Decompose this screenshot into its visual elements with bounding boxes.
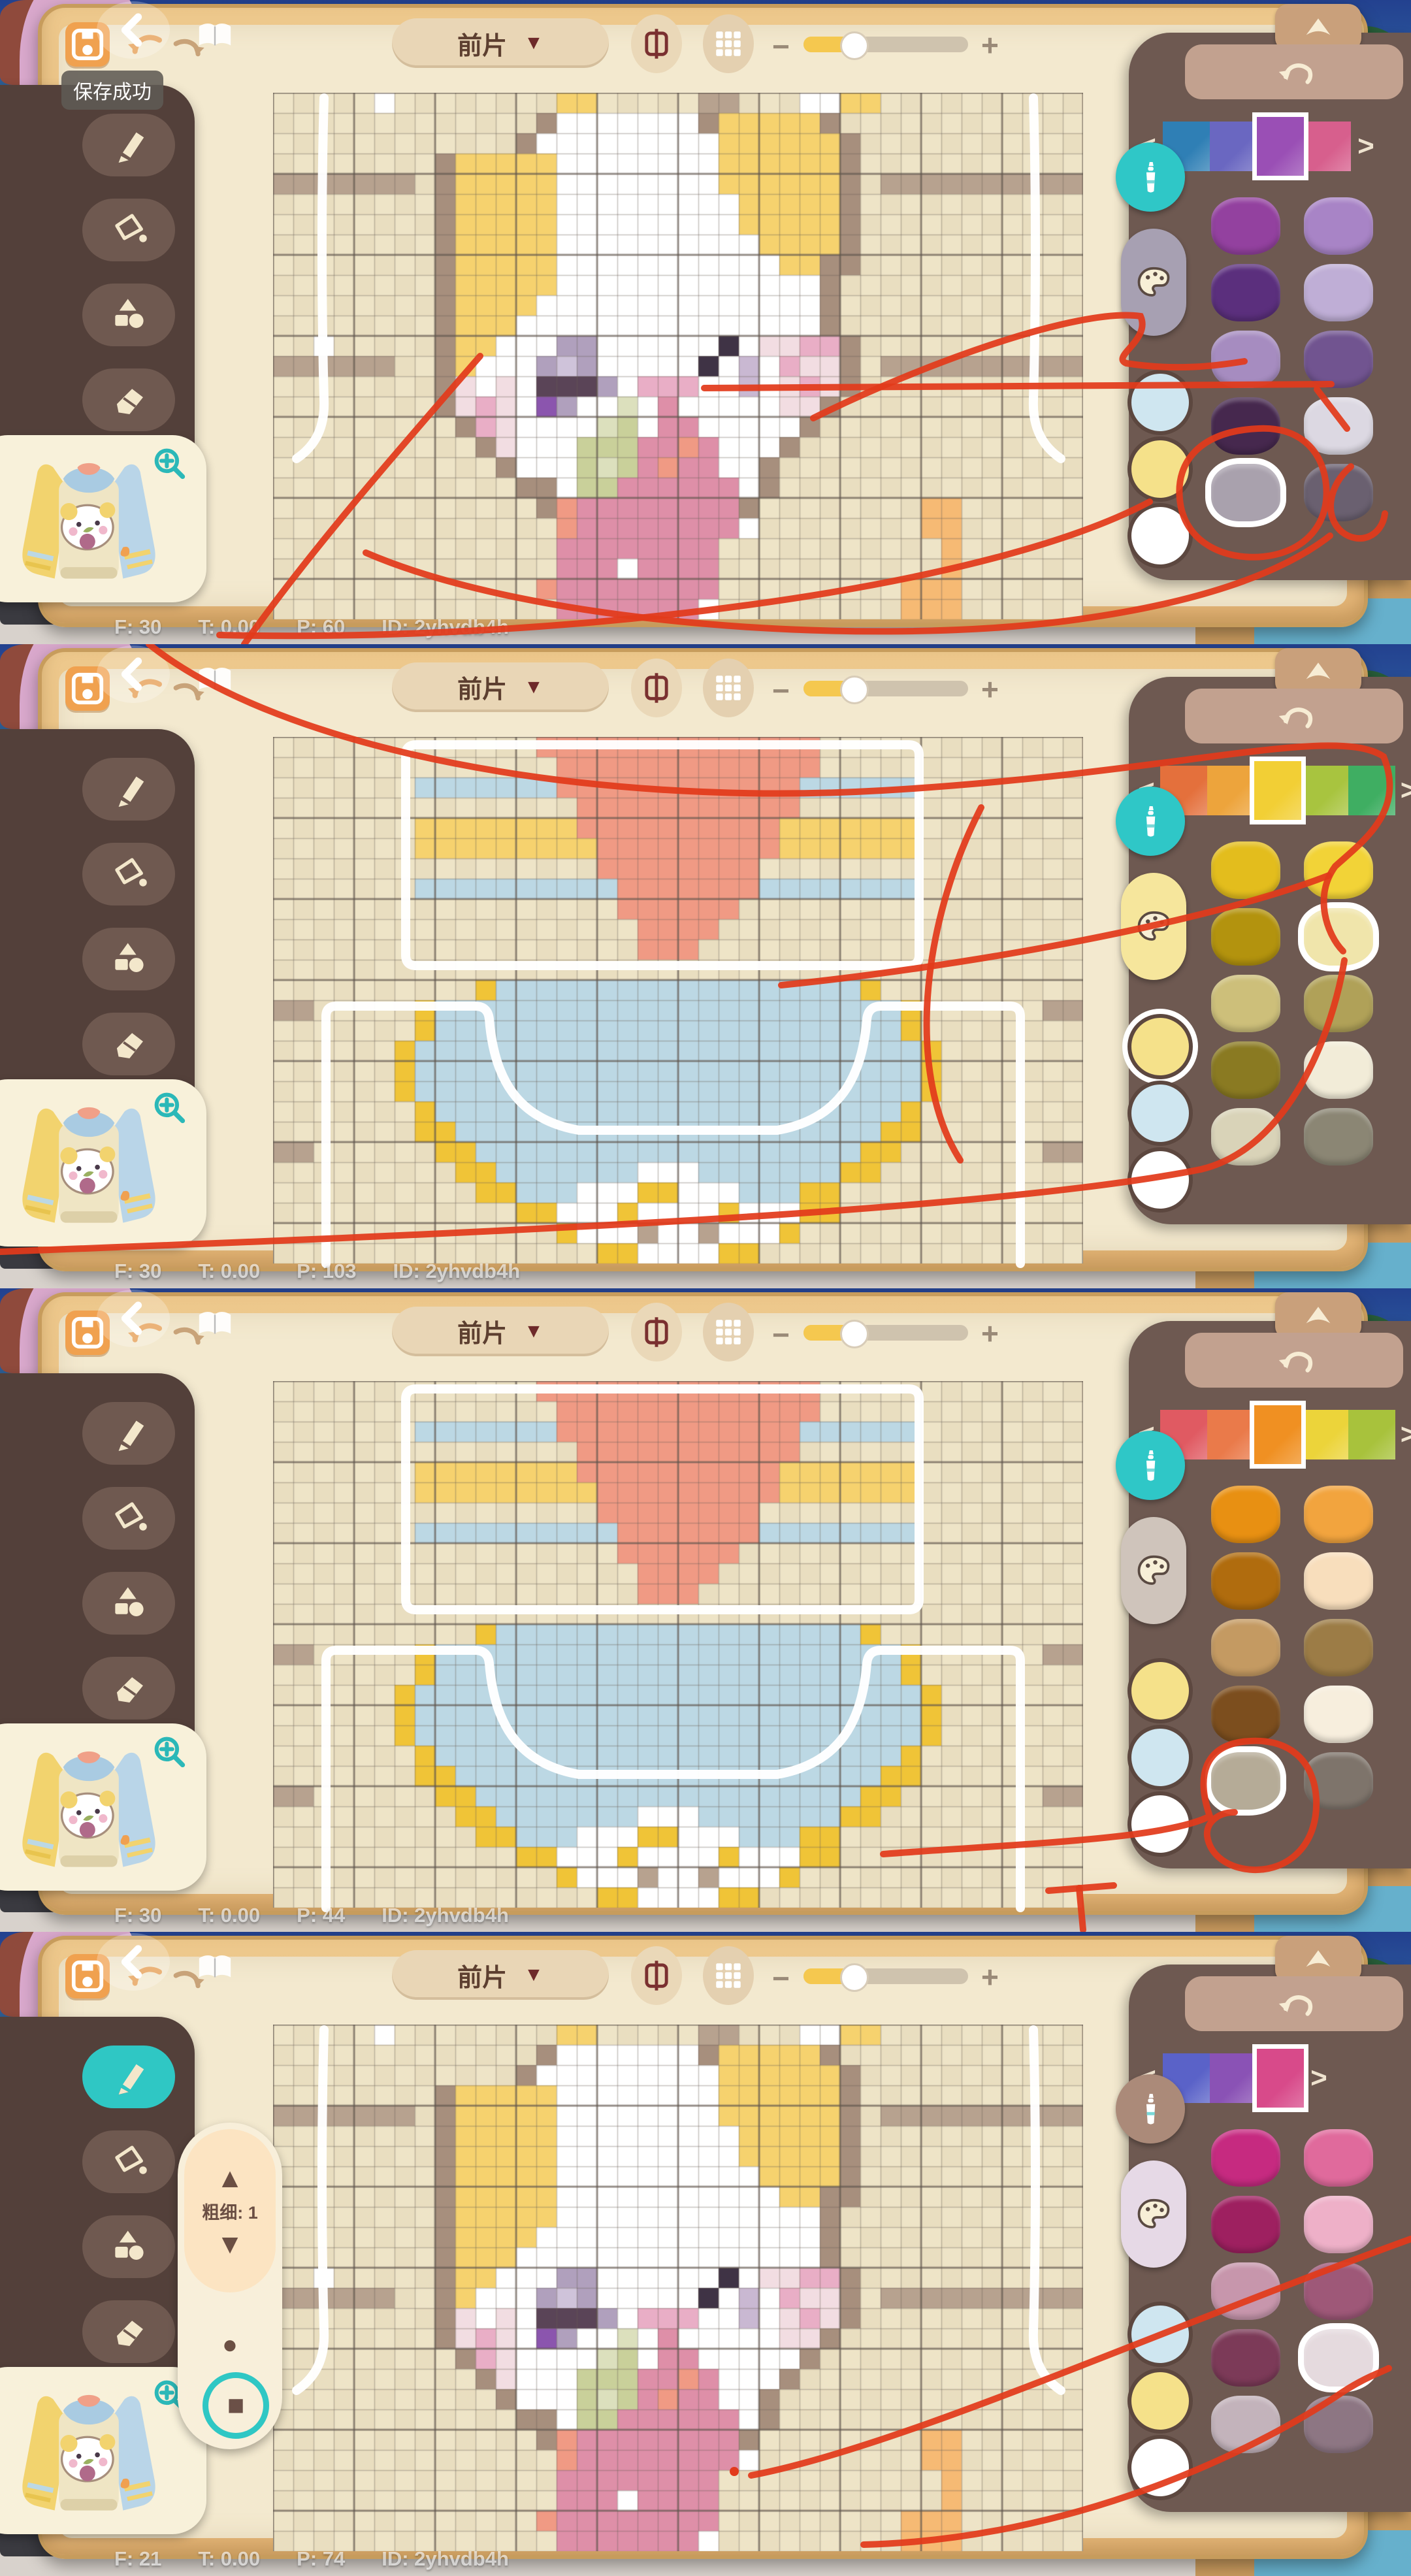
color-swatch[interactable] [1304,331,1373,388]
editor-panel: 前片 ▼ − + [0,644,1411,1288]
zoom-in-button[interactable]: + [981,1959,999,1995]
pencil-icon [108,1413,149,1454]
piece-dropdown[interactable]: 前片 ▼ [392,1950,609,2000]
tool-fill-bucket-button[interactable] [82,843,175,905]
swatch-grid [1211,1486,1373,1810]
manual-book-button[interactable] [196,1951,234,1984]
piece-dropdown[interactable]: 前片 ▼ [392,662,609,712]
size-down-button[interactable]: ▼ [216,2230,244,2258]
tool-eraser-button[interactable] [82,1657,175,1720]
color-swatch[interactable] [1304,197,1373,255]
milk-bottle-icon [1131,802,1169,840]
palette-icon [1134,907,1173,946]
grid-toggle-button[interactable] [703,1946,754,2005]
piece-dropdown-label: 前片 [457,1957,507,1993]
palette-icon [1134,2194,1173,2234]
palette-icon [1134,263,1173,302]
tool-pencil-button[interactable] [82,2046,175,2108]
status-points: P: 74 [297,2547,345,2571]
pencil-icon [108,769,149,809]
gradient-strip-segment[interactable] [1207,766,1254,815]
garment-preview-card [0,435,206,602]
tool-pencil-button[interactable] [82,114,175,176]
status-bar: F: 30 T: 0.00 P: 44 ID: 2yhvdb4h [114,1904,509,1927]
pixel-editor-area [273,1381,1083,1908]
back-button[interactable] [97,1933,170,1991]
seam-guide-overlay [273,2025,1083,2551]
grid-icon [712,672,745,704]
zoom-out-button[interactable]: − [772,29,790,64]
color-swatch[interactable] [1304,1686,1373,1743]
pixel-editor-area [273,2025,1083,2551]
manual-book-button[interactable] [196,664,234,696]
editor-panel: 保存成功 前片 ▼ − + [0,0,1411,644]
palette-undo-button[interactable] [1185,1333,1403,1388]
grid-toggle-button[interactable] [703,1303,754,1361]
color-swatch[interactable] [1211,197,1280,255]
collapse-panel-button[interactable] [1275,1292,1361,1339]
milk-bottle-icon [1131,158,1169,196]
color-swatch[interactable] [1211,2129,1280,2187]
palette-next-button[interactable]: > [1356,130,1376,163]
magnifier-plus-icon [150,1733,188,1770]
color-swatch[interactable] [1211,264,1280,321]
color-swatch[interactable] [1304,2262,1373,2320]
eraser-icon [108,1024,149,1064]
brush-shape-circle-button[interactable]: ● [178,2330,282,2360]
tool-shapes-button[interactable] [82,2215,175,2278]
eraser-icon [108,1668,149,1708]
palette-tool-button[interactable] [1121,2160,1186,2268]
color-swatch[interactable] [1304,1486,1373,1543]
chevron-down-icon: ▼ [524,32,543,54]
gradient-strip-segment[interactable] [1254,761,1301,820]
color-swatch[interactable] [1211,464,1280,521]
color-swatch[interactable] [1211,1686,1280,1743]
shapes-icon [108,295,149,335]
design-editor-app: 保存成功 前片 ▼ − + [0,0,1411,2576]
dye-bottle-tool-button[interactable] [1116,787,1185,856]
zoom-preview-button[interactable] [150,444,188,482]
palette-tool-button[interactable] [1121,229,1186,336]
piece-dropdown-label: 前片 [457,669,507,705]
size-up-button[interactable]: ▲ [216,2164,244,2192]
color-swatch[interactable] [1211,1552,1280,1610]
fill-bucket-icon [108,854,149,894]
gradient-strip-segment[interactable] [1207,1410,1254,1459]
chevron-down-icon: ▼ [524,676,543,698]
piece-dropdown-label: 前片 [457,1313,507,1349]
status-id: ID: 2yhvdb4h [393,1260,520,1283]
chevron-left-icon [114,655,153,694]
tool-eraser-button[interactable] [82,2300,175,2363]
color-swatch[interactable] [1211,1752,1280,1810]
color-swatch[interactable] [1211,2329,1280,2387]
palette-undo-button[interactable] [1185,689,1403,743]
swatch-grid [1211,197,1373,521]
editor-panel: 前片 ▼ − + [0,1932,1411,2576]
tool-fill-bucket-button[interactable] [82,199,175,261]
zoom-slider-knob[interactable] [840,31,869,60]
collapse-panel-button[interactable] [1275,648,1361,695]
book-icon [196,664,234,696]
zoom-in-button[interactable]: + [981,1316,999,1351]
zoom-in-button[interactable]: + [981,672,999,707]
gradient-strip [1160,1410,1395,1459]
chevron-left-icon [114,1942,153,1981]
dye-bottle-tool-button[interactable] [1116,2074,1185,2144]
color-swatch[interactable] [1304,1041,1373,1099]
zoom-slider[interactable] [803,681,968,696]
status-bar: F: 21 T: 0.00 P: 74 ID: 2yhvdb4h [114,2547,509,2571]
undo-arrow-icon [1274,1343,1314,1377]
magnifier-plus-icon [150,1088,188,1126]
back-button[interactable] [97,645,170,703]
magnifier-plus-icon [150,444,188,482]
pencil-icon [108,125,149,165]
chevron-up-icon [1300,12,1337,42]
fill-bucket-icon [108,2142,149,2182]
chevron-up-icon [1300,1301,1337,1331]
garment-preview-card [0,1723,206,1891]
status-frames: F: 21 [114,2547,161,2571]
gradient-strip [1160,766,1395,815]
color-palette-panel: < > [1129,1321,1411,1868]
status-bar: F: 30 T: 0.00 P: 103 ID: 2yhvdb4h [114,1260,520,1283]
status-time: T: 0.00 [198,1260,260,1283]
square-brush-icon: ■ [227,2391,245,2420]
gradient-strip-segment[interactable] [1348,1410,1395,1459]
zoom-out-button[interactable]: − [772,673,790,708]
color-swatch[interactable] [1304,464,1373,521]
status-id: ID: 2yhvdb4h [381,1904,509,1927]
zoom-slider[interactable] [803,37,968,52]
undo-arrow-icon [1274,699,1314,733]
fill-bucket-icon [108,1498,149,1539]
color-palette-panel: < > [1129,1965,1411,2512]
status-frames: F: 30 [114,1904,161,1927]
status-time: T: 0.00 [198,1904,260,1927]
pen-size-popout: ▲ 粗细: 1 ▼ ● ■ [178,2123,282,2449]
gradient-strip-segment[interactable] [1254,1405,1301,1464]
base-color-circle-2[interactable] [1127,1081,1193,1146]
gradient-strip-segment[interactable] [1348,766,1395,815]
piece-dropdown[interactable]: 前片 ▼ [392,18,609,68]
gradient-strip-segment[interactable] [1257,2049,1304,2108]
palette-next-button[interactable]: > [1401,1418,1411,1451]
mirror-icon [640,1315,673,1349]
status-id: ID: 2yhvdb4h [381,615,509,639]
mirror-button[interactable] [631,1303,682,1361]
color-swatch[interactable] [1211,975,1280,1032]
color-swatch[interactable] [1304,2329,1373,2387]
undo-arrow-icon [1274,1987,1314,2021]
book-icon [196,20,234,52]
status-points: P: 60 [297,615,345,639]
zoom-slider[interactable] [803,1325,968,1341]
status-points: P: 103 [297,1260,356,1283]
zoom-slider-knob[interactable] [840,676,869,704]
dye-bottle-tool-button[interactable] [1116,1431,1185,1500]
status-id: ID: 2yhvdb4h [381,2547,509,2571]
grid-icon [712,27,745,60]
tool-eraser-button[interactable] [82,1013,175,1075]
color-swatch[interactable] [1211,397,1280,455]
pencil-icon [108,2057,149,2097]
back-button[interactable] [97,1290,170,1347]
gradient-strip-segment[interactable] [1301,1410,1348,1459]
base-color-circle-3[interactable] [1127,503,1193,568]
grid-icon [712,1959,745,1992]
save-success-tooltip: 保存成功 [61,71,163,110]
chevron-left-icon [114,10,153,50]
status-bar: F: 30 T: 0.00 P: 60 ID: 2yhvdb4h [114,615,509,639]
color-swatch[interactable] [1304,908,1373,966]
palette-next-button[interactable]: > [1309,2062,1329,2095]
base-color-circle-1[interactable] [1127,2302,1193,2367]
zoom-slider[interactable] [803,1968,968,1984]
mirror-button[interactable] [631,659,682,717]
undo-arrow-icon [1274,55,1314,89]
palette-icon [1134,1551,1173,1590]
color-swatch[interactable] [1304,1619,1373,1676]
gradient-strip-segment[interactable] [1210,2053,1257,2103]
brush-shape-square-button[interactable]: ■ [203,2372,269,2439]
shapes-icon [108,939,149,979]
base-color-circle-3[interactable] [1127,1791,1193,1857]
mirror-icon [640,1959,673,1993]
zoom-slider-knob[interactable] [840,1963,869,1992]
chevron-up-icon [1300,657,1337,687]
eraser-icon [108,2311,149,2352]
milk-bottle-icon [1131,1446,1169,1484]
tool-pencil-button[interactable] [82,1402,175,1465]
color-swatch[interactable] [1211,1108,1280,1166]
back-button[interactable] [97,1,170,59]
gradient-strip-segment[interactable] [1210,122,1257,171]
fill-bucket-icon [108,210,149,250]
color-swatch[interactable] [1211,2396,1280,2453]
color-swatch[interactable] [1211,2196,1280,2253]
tool-pencil-button[interactable] [82,758,175,821]
tool-fill-bucket-button[interactable] [82,1487,175,1550]
color-swatch[interactable] [1211,1486,1280,1543]
garment-preview-card [0,2367,206,2534]
grid-icon [712,1316,745,1348]
gradient-strip [1163,2053,1304,2103]
chevron-down-icon: ▼ [524,1964,543,1986]
color-swatch[interactable] [1304,975,1373,1032]
editor-panel: 前片 ▼ − + [0,1288,1411,1932]
gradient-strip-segment[interactable] [1301,766,1348,815]
color-swatch[interactable] [1211,1041,1280,1099]
garment-preview-card [0,1079,206,1247]
tool-shapes-button[interactable] [82,928,175,990]
swatch-grid [1211,2129,1373,2453]
shapes-icon [108,2226,149,2267]
pen-size-label: 粗细: 1 [202,2198,258,2224]
seam-guide-overlay [273,1381,1083,1908]
status-time: T: 0.00 [198,615,260,639]
tool-shapes-button[interactable] [82,1572,175,1635]
book-icon [196,1951,234,1984]
chevron-down-icon: ▼ [524,1320,543,1343]
color-palette-panel: < > [1129,677,1411,1224]
color-swatch[interactable] [1304,2196,1373,2253]
color-swatch[interactable] [1211,908,1280,966]
mirror-button[interactable] [631,1946,682,2005]
palette-tool-button[interactable] [1121,1517,1186,1624]
zoom-out-button[interactable]: − [772,1961,790,1996]
seam-guide-overlay [273,93,1083,619]
book-icon [196,1308,234,1341]
status-time: T: 0.00 [198,2547,260,2571]
color-swatch[interactable] [1304,264,1373,321]
swatch-grid [1211,841,1373,1166]
palette-tool-button[interactable] [1121,873,1186,980]
tool-shapes-button[interactable] [82,284,175,346]
seam-guide-overlay [273,737,1083,1264]
base-color-circle-3[interactable] [1127,1147,1193,1213]
shapes-icon [108,1583,149,1623]
status-frames: F: 30 [114,1260,161,1283]
color-swatch[interactable] [1304,841,1373,899]
eraser-icon [108,380,149,420]
grid-toggle-button[interactable] [703,659,754,717]
piece-dropdown-label: 前片 [457,25,507,61]
base-color-circle-2[interactable] [1127,1725,1193,1790]
mirror-icon [640,671,673,705]
gradient-strip-segment[interactable] [1304,122,1351,171]
pixel-editor-area [273,93,1083,619]
tool-eraser-button[interactable] [82,368,175,431]
base-color-circle-1[interactable] [1127,1658,1193,1723]
status-points: P: 44 [297,1904,345,1927]
zoom-out-button[interactable]: − [772,1317,790,1352]
pixel-editor-area [273,737,1083,1264]
base-color-circle-3[interactable] [1127,2435,1193,2500]
base-color-circle-1[interactable] [1127,370,1193,435]
piece-dropdown[interactable]: 前片 ▼ [392,1307,609,1356]
zoom-preview-button[interactable] [150,1088,188,1126]
palette-next-button[interactable]: > [1401,774,1411,807]
grid-toggle-button[interactable] [703,14,754,73]
color-swatch[interactable] [1304,1752,1373,1810]
tool-fill-bucket-button[interactable] [82,2130,175,2193]
zoom-slider-knob[interactable] [840,1320,869,1348]
base-color-circle-2[interactable] [1127,436,1193,502]
color-palette-panel: < > [1129,33,1411,580]
color-swatch[interactable] [1304,1552,1373,1610]
color-swatch[interactable] [1304,1108,1373,1166]
color-swatch[interactable] [1304,2129,1373,2187]
color-swatch[interactable] [1211,2262,1280,2320]
color-swatch[interactable] [1304,397,1373,455]
zoom-in-button[interactable]: + [981,27,999,63]
color-swatch[interactable] [1211,841,1280,899]
chevron-left-icon [114,1299,153,1338]
zoom-preview-button[interactable] [150,1733,188,1770]
base-color-circle-1[interactable] [1127,1014,1193,1079]
milk-bottle-icon [1131,2090,1169,2128]
mirror-button[interactable] [631,14,682,73]
color-swatch[interactable] [1211,1619,1280,1676]
mirror-icon [640,27,673,61]
status-frames: F: 30 [114,615,161,639]
color-swatch[interactable] [1304,2396,1373,2453]
palette-undo-button[interactable] [1185,44,1403,99]
base-color-circle-2[interactable] [1127,2368,1193,2434]
manual-book-button[interactable] [196,20,234,52]
manual-book-button[interactable] [196,1308,234,1341]
pen-size-box: ▲ 粗细: 1 ▼ [184,2129,276,2292]
palette-undo-button[interactable] [1185,1976,1403,2031]
dye-bottle-tool-button[interactable] [1116,142,1185,212]
gradient-strip-segment[interactable] [1257,117,1304,176]
color-swatch[interactable] [1211,331,1280,388]
gradient-strip [1163,122,1351,171]
chevron-up-icon [1300,1944,1337,1974]
